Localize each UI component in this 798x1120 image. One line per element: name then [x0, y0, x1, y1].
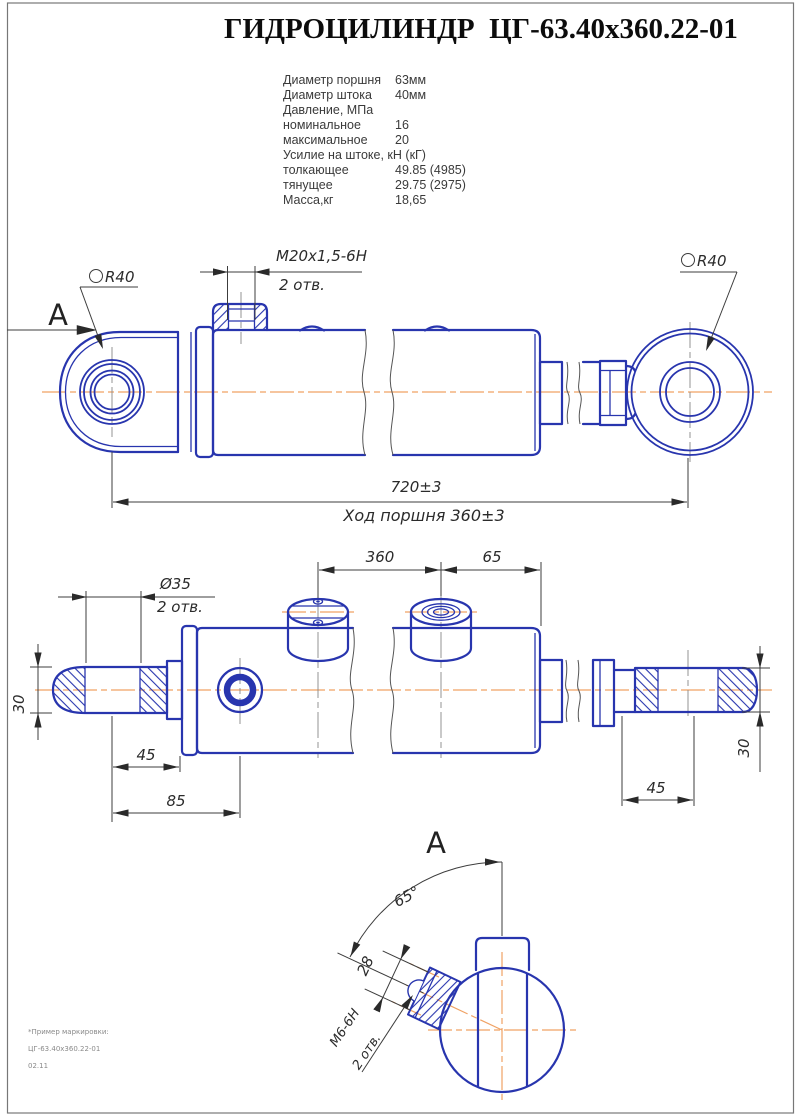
stroke-dim-label: Ход поршня 360±3 — [342, 506, 504, 525]
sphere-symbol-icon — [90, 270, 103, 283]
m6-label: М6-6Н — [327, 1006, 363, 1050]
view-a: А 65° — [327, 826, 578, 1104]
sphere-symbol-icon — [682, 254, 695, 267]
piston-rod — [540, 361, 635, 425]
m20-label: М20х1,5-6Н — [276, 247, 367, 265]
dim-30-right-label: 30 — [735, 738, 753, 757]
dimension-hole-35: Ø35 2 отв. — [58, 575, 215, 663]
sphere-r40-right: R40 — [680, 252, 737, 352]
marking-note: *Пример маркировки: ЦГ-63.40х360.22-01 0… — [28, 1024, 109, 1075]
r40-left-label: R40 — [105, 268, 135, 286]
marking-note-line: *Пример маркировки: — [28, 1024, 109, 1041]
sheet-border — [8, 3, 794, 1113]
m20-qty-label: 2 отв. — [279, 276, 325, 294]
plan-view: Ø35 2 отв. 30 45 — [10, 548, 772, 822]
callout-m6: М6-6Н 2 отв. — [327, 993, 416, 1073]
angled-port-boss — [408, 968, 461, 1030]
hole-qty-label: 2 отв. — [157, 598, 203, 616]
dim-28-label: 28 — [353, 953, 377, 978]
side-view: А — [7, 247, 772, 525]
marking-note-line: 02.11 — [28, 1058, 109, 1075]
dim-30-left-label: 30 — [10, 694, 28, 713]
marking-note-line: ЦГ-63.40х360.22-01 — [28, 1041, 109, 1058]
view-a-label: А — [426, 826, 446, 860]
r40-right-label: R40 — [697, 252, 727, 270]
dimension-45-right: 45 — [622, 716, 694, 806]
dim-45-right-label: 45 — [646, 779, 665, 797]
port-boss-section — [213, 304, 267, 330]
hole-dia-label: Ø35 — [159, 575, 191, 593]
dim-65-label: 65 — [482, 548, 501, 566]
drawing-sheet: ГИДРОЦИЛИНДР ЦГ-63.40х360.22-01 Диаметр … — [0, 0, 798, 1120]
angle-65-label: 65° — [391, 882, 423, 910]
dim-85-label: 85 — [166, 792, 185, 810]
dimension-45-85-left: 45 85 — [112, 716, 240, 822]
dim-360-label: 360 — [366, 548, 395, 566]
dimension-30-left: 30 — [10, 644, 52, 740]
rod-plan — [540, 660, 757, 726]
dim-45-left-label: 45 — [136, 746, 155, 764]
section-a-label: А — [48, 298, 68, 332]
drawing-canvas: А — [0, 0, 798, 1120]
section-a-arrow: А — [7, 298, 97, 335]
length-dim-label: 720±3 — [391, 478, 442, 496]
m6-qty-label: 2 отв. — [350, 1031, 385, 1072]
dimension-720: 720±3 Ход поршня 360±3 — [112, 452, 688, 525]
